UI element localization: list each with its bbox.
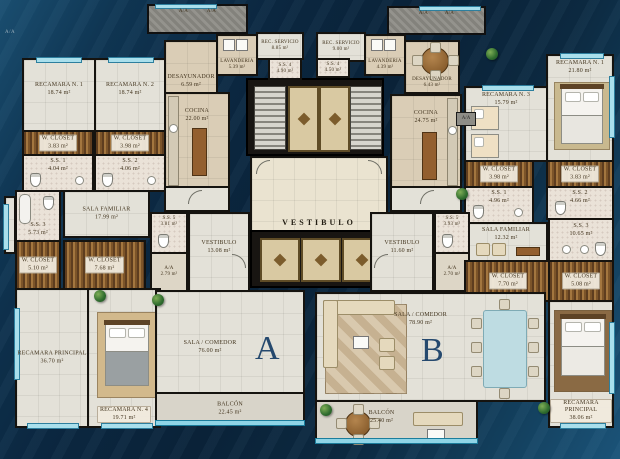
room-label: RECAMARA N. 315.79 m² xyxy=(466,92,546,107)
room-b-ss-1: S.S. 14.96 m² xyxy=(464,186,534,224)
sink xyxy=(562,245,571,254)
room-label: LAVANDERIA5.39 m² xyxy=(218,59,256,72)
toilet xyxy=(30,173,41,187)
room-label: RECAMARA PRINCIPAL38.06 m² xyxy=(550,399,612,424)
door-arc xyxy=(256,160,270,174)
room-b-lavanderia: LAVANDERIA4.39 m² xyxy=(364,34,406,76)
room-b-wcloset-4: W. CLOSET5.08 m² xyxy=(548,260,614,302)
bed xyxy=(105,324,149,386)
toilet xyxy=(43,196,54,210)
room-a-recamara-4: RECAMARA N. 419.71 m² xyxy=(87,288,161,428)
window xyxy=(609,322,615,394)
headboard xyxy=(104,320,150,325)
chair xyxy=(528,318,539,329)
plant xyxy=(538,402,550,414)
room-label: SALA FAMILIAR17.99 m² xyxy=(65,207,148,222)
room-a-cocina: COCINA22.00 m² xyxy=(164,92,230,188)
floor-plan-scene: A/A A/A A/A A/A A/A A/A VESTIBULO RECAMA… xyxy=(0,0,620,459)
room-a-recamara-principal: RECAMARA PRINCIPAL36.70 m² xyxy=(15,288,89,428)
room-label: RECAMARA N. 118.74 m² xyxy=(24,82,94,97)
room-label: REC. SERVICIO9.00 m² xyxy=(318,41,364,54)
blanket xyxy=(561,115,603,144)
window xyxy=(101,423,153,429)
door-arc xyxy=(420,190,434,204)
room-label: REC. SERVICIO8.85 m² xyxy=(258,40,302,53)
window xyxy=(482,85,534,91)
balcony-railing xyxy=(315,438,478,444)
room-b-sala-familiar: SALA FAMILIAR12.32 m² xyxy=(464,222,548,262)
plant xyxy=(456,188,468,200)
elevator-cab xyxy=(319,86,350,152)
room-b-desayunador: DESAYUNADOR6.43 m² xyxy=(404,40,460,94)
room-label: S.S. 53.93 m² xyxy=(436,216,468,229)
room-label: W. CLOSET3.83 m² xyxy=(548,166,612,183)
chair xyxy=(528,342,539,353)
outdoor-sofa xyxy=(413,412,463,426)
room-a-desayunador: DESAYUNADOR6.59 m² xyxy=(164,40,218,94)
unit-a-letter: A xyxy=(255,332,280,366)
armchair xyxy=(379,338,395,352)
room-label: W. CLOSET3.83 m² xyxy=(24,135,92,152)
room-label: S.S. 14.04 m² xyxy=(24,158,92,173)
room-label: S.S. 310.65 m² xyxy=(550,223,612,238)
room-label: LAVANDERIA4.39 m² xyxy=(366,59,404,72)
room-label: DESAYUNADOR6.59 m² xyxy=(166,74,216,89)
room-a-wcloset-3: W. CLOSET5.10 m² xyxy=(15,240,61,290)
door-arc xyxy=(368,160,382,174)
window xyxy=(14,308,20,380)
chair xyxy=(430,70,441,81)
chair xyxy=(471,366,482,377)
room-a-sala-comedor: SALA / COMEDOR76.00 m² A xyxy=(155,290,305,394)
plant xyxy=(320,404,332,416)
window xyxy=(27,423,79,429)
room-label: VESTIBULO13.08 m² xyxy=(190,240,248,255)
pillow xyxy=(583,92,599,102)
pillow xyxy=(128,328,145,338)
dining-table xyxy=(483,310,527,388)
window xyxy=(560,423,606,429)
room-a-sala-familiar: SALA FAMILIAR17.99 m² xyxy=(63,190,150,238)
room-a-wcloset-4: W. CLOSET7.68 m² xyxy=(63,240,146,290)
chair xyxy=(499,299,510,310)
chair xyxy=(499,388,510,399)
tv-console xyxy=(516,247,540,256)
headboard xyxy=(560,84,604,89)
washer xyxy=(384,39,396,51)
room-label: W. CLOSET5.10 m² xyxy=(17,257,59,274)
door-arc xyxy=(188,190,202,204)
chair xyxy=(336,418,347,429)
armchair xyxy=(379,356,395,370)
chair xyxy=(471,342,482,353)
room-a-wcloset-1: W. CLOSET3.83 m² xyxy=(22,130,94,156)
chair xyxy=(412,55,423,66)
room-label: RECAMARA PRINCIPAL36.70 m² xyxy=(17,351,87,366)
room-a-recamara-1: RECAMARA N. 118.74 m² xyxy=(22,58,96,132)
window xyxy=(108,57,154,63)
chair xyxy=(369,418,380,429)
room-label: W. CLOSET5.08 m² xyxy=(550,273,612,290)
toilet xyxy=(473,205,484,219)
roof-patch-right: A/A A/A xyxy=(387,6,486,35)
room-label: SALA FAMILIAR12.32 m² xyxy=(466,227,546,242)
room-label: S.S. 44.90 m² xyxy=(270,63,300,76)
window xyxy=(36,57,82,63)
washer xyxy=(371,39,383,51)
plant xyxy=(94,290,106,302)
sink xyxy=(169,124,178,133)
room-label: S.S. 14.96 m² xyxy=(466,190,532,205)
room-b-wcloset-2: W. CLOSET3.83 m² xyxy=(546,160,614,188)
window xyxy=(419,6,481,11)
roof-patch-left: A/A A/A xyxy=(147,4,248,34)
core-elevator-bank xyxy=(250,230,388,288)
chair xyxy=(528,366,539,377)
room-a-ss-1: S.S. 14.04 m² xyxy=(22,154,94,192)
armchair xyxy=(476,243,490,256)
window xyxy=(609,76,615,138)
room-label: S.S. 24.06 m² xyxy=(96,158,164,173)
room-a-balcon: BALCÓN22.45 m² xyxy=(155,392,305,426)
sink xyxy=(448,126,457,135)
sink xyxy=(147,176,156,185)
elevator-cab xyxy=(288,86,319,152)
window xyxy=(3,204,9,250)
room-label: RECAMARA N. 419.71 m² xyxy=(89,406,159,423)
core-lobby-label: VESTIBULO xyxy=(252,218,386,227)
blanket xyxy=(561,346,605,376)
plant xyxy=(486,48,498,60)
room-b-cocina: COCINA24.75 m² xyxy=(390,94,462,188)
toilet xyxy=(158,234,169,248)
pillow xyxy=(109,328,126,338)
aa-tag-left: A/A xyxy=(5,30,15,35)
washer xyxy=(223,39,235,51)
armchair xyxy=(492,243,506,256)
toilet xyxy=(595,242,606,256)
room-label: BALCÓN22.45 m² xyxy=(157,402,303,417)
room-a-vestibulo: VESTIBULO13.08 m² xyxy=(188,212,250,292)
room-label: W. CLOSET3.98 m² xyxy=(96,135,164,152)
pillow xyxy=(584,322,601,332)
room-a-lavanderia: LAVANDERIA5.39 m² xyxy=(216,34,258,76)
stairs xyxy=(350,86,382,150)
door-arc xyxy=(232,254,246,268)
toilet xyxy=(555,201,566,215)
toilet xyxy=(102,173,113,187)
bed xyxy=(471,134,499,158)
pillow xyxy=(565,92,581,102)
room-label: W. CLOSET7.70 m² xyxy=(466,273,550,290)
balcony-railing xyxy=(155,420,305,426)
stairs xyxy=(254,86,286,150)
roof-label: A/A xyxy=(415,11,484,17)
plant xyxy=(152,294,164,306)
washer xyxy=(236,39,248,51)
room-label: S.S. 35.73 m² xyxy=(17,222,59,237)
room-b-sala-comedor: SALA / COMEDOR78.90 m² B xyxy=(315,292,546,402)
core-lobby: VESTIBULO xyxy=(250,156,388,234)
bathtub xyxy=(19,194,31,224)
room-label: VESTIBULO11.60 m² xyxy=(372,240,432,255)
kitchen-island xyxy=(192,128,207,176)
elevator-cab xyxy=(260,238,300,282)
room-label: W. CLOSET7.68 m² xyxy=(65,257,144,274)
sink xyxy=(75,176,84,185)
blanket xyxy=(105,351,149,386)
chair xyxy=(471,318,482,329)
room-b-recamara-3: RECAMARA N. 315.79 m² xyxy=(464,86,548,162)
kitchen-counter xyxy=(168,96,179,186)
pillow xyxy=(474,137,484,147)
room-b-ss-5: S.S. 53.93 m² xyxy=(434,212,470,254)
chair xyxy=(448,55,459,66)
room-b-recamara-principal: RECAMARA PRINCIPAL38.06 m² xyxy=(548,300,614,428)
headboard xyxy=(560,314,606,319)
room-b-balcon: BALCÓN25.40 m² xyxy=(315,400,478,444)
room-label: S.S. 53.81 m² xyxy=(152,216,186,229)
room-a-wcloset-2: W. CLOSET3.98 m² xyxy=(94,130,166,156)
corridor-b xyxy=(390,186,462,212)
coffee-table xyxy=(353,336,369,349)
bed xyxy=(561,318,605,376)
room-label: RECAMARA N. 218.74 m² xyxy=(96,82,164,97)
window xyxy=(560,53,604,59)
room-a-ss-3: S.S. 35.73 m² xyxy=(15,190,61,242)
room-b-ss-2: S.S. 24.66 m² xyxy=(546,186,614,220)
room-a-rec-servicio: REC. SERVICIO8.85 m² xyxy=(256,32,304,60)
room-b-ss-4: S.S. 44.50 m² xyxy=(316,58,350,78)
corridor-a xyxy=(164,186,230,212)
aa-tag-right: A/A xyxy=(456,112,476,126)
room-a-ss-5: S.S. 53.81 m² xyxy=(150,212,188,254)
unit-b-letter: B xyxy=(421,334,444,368)
sofa xyxy=(323,300,338,368)
sink xyxy=(514,208,523,217)
bed xyxy=(561,88,603,144)
toilet xyxy=(442,234,453,248)
room-a-ss-4: S.S. 44.90 m² xyxy=(268,58,302,80)
room-b-wcloset-1: W. CLOSET3.98 m² xyxy=(464,160,534,188)
sink xyxy=(580,245,589,254)
chair xyxy=(430,42,441,53)
elevator-cab xyxy=(301,238,341,282)
door-arc xyxy=(374,254,388,268)
room-label: A/A2.79 m² xyxy=(152,266,186,279)
chair xyxy=(353,404,364,415)
roof-label: A/A xyxy=(177,9,246,15)
pillow xyxy=(565,322,582,332)
kitchen-island xyxy=(422,132,437,180)
room-a-ss-2: S.S. 24.06 m² xyxy=(94,154,166,192)
room-label: S.S. 44.50 m² xyxy=(318,62,348,75)
room-label: RECAMARA N. 121.80 m² xyxy=(548,60,612,75)
room-a-recamara-2: RECAMARA N. 218.74 m² xyxy=(94,58,166,132)
room-label: W. CLOSET3.98 m² xyxy=(466,166,532,183)
room-b-vestibulo: VESTIBULO11.60 m² xyxy=(370,212,434,292)
room-a-aa: A/A2.79 m² xyxy=(150,252,188,292)
window xyxy=(155,4,217,9)
room-b-recamara-1: RECAMARA N. 121.80 m² xyxy=(546,54,614,162)
room-b-ss-3: S.S. 310.65 m² xyxy=(548,218,614,262)
core-shaft-block xyxy=(246,78,384,156)
